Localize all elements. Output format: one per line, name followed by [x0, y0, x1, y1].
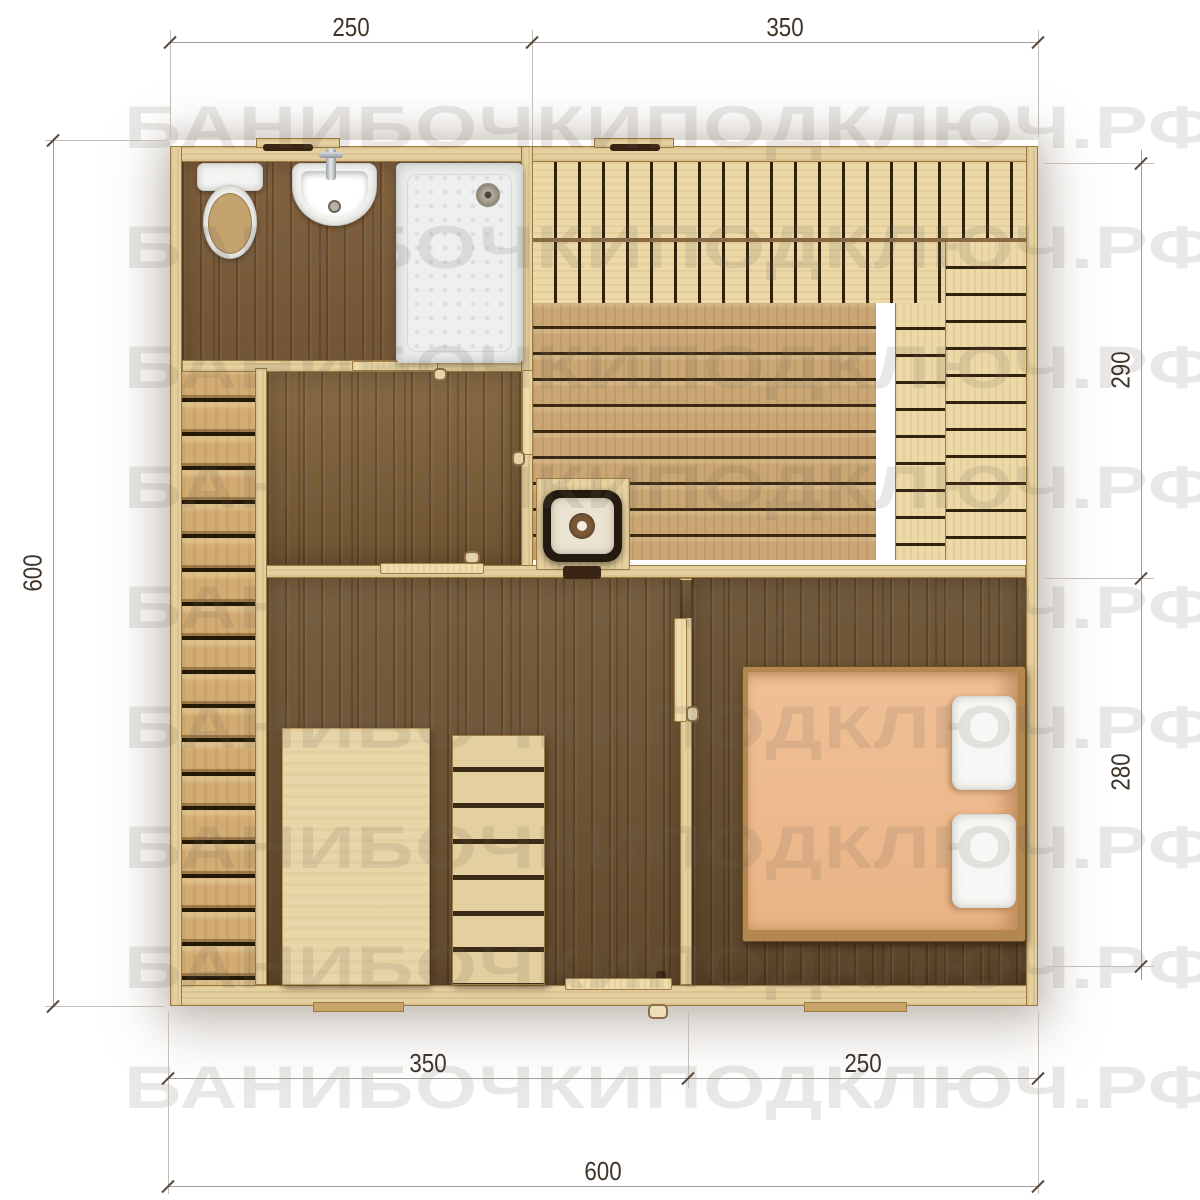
- dim-bottom-right: 250: [841, 1048, 884, 1079]
- stove-chimney: [563, 566, 601, 579]
- sauna-bench-right: [945, 242, 1026, 560]
- shower-drain: [476, 183, 500, 207]
- entrance-door-handle: [648, 1004, 668, 1019]
- dim-top-left: 250: [329, 12, 372, 43]
- dim-left-total: 600: [18, 551, 49, 594]
- bedroom-door-leaf: [674, 618, 687, 722]
- sauna-door-leaf: [522, 370, 533, 455]
- extension-line: [1038, 1012, 1039, 1194]
- table: [282, 728, 430, 985]
- bed-pillow-top: [952, 696, 1016, 790]
- entrance-door-leaf: [565, 978, 672, 990]
- entrance-threshold-left: [313, 1002, 404, 1012]
- wall-middle-horizontal: [255, 565, 1026, 578]
- extension-line: [170, 30, 171, 138]
- extension-line: [168, 1012, 169, 1194]
- extension-line: [1038, 30, 1039, 138]
- bed-pillow-bottom: [952, 814, 1016, 908]
- top-wall-vent-right: [610, 144, 660, 151]
- extension-line: [45, 140, 165, 141]
- top-wall-vent-left: [263, 144, 313, 151]
- bedroom-doorway-opening: [680, 580, 692, 618]
- bedroom-door-handle: [686, 706, 699, 722]
- dim-bottom-total: 600: [581, 1156, 624, 1187]
- floor-plan: [170, 140, 1038, 1006]
- sink-faucet-handle: [319, 152, 343, 158]
- sink-drain: [328, 200, 341, 213]
- sauna-bench-lower-tier: [533, 242, 945, 303]
- dimension-line-top: [170, 42, 1038, 43]
- bench: [452, 735, 545, 985]
- washroom-door-handle: [464, 551, 480, 564]
- dim-right-lower: 280: [1106, 750, 1137, 793]
- wall-outer-left: [170, 146, 182, 1006]
- extension-line: [532, 30, 533, 146]
- dimension-line-bottom-inner: [168, 1078, 1038, 1079]
- entrance-threshold-right: [804, 1002, 907, 1012]
- terrace-decking: [182, 368, 255, 985]
- sauna-bench-middle-step: [895, 303, 945, 560]
- bathroom-door-handle: [433, 368, 447, 381]
- extension-line: [45, 1006, 165, 1007]
- floor-plan-canvas: БАНИБОЧКИПОДКЛЮЧ.РФ БАНИБОЧКИПОДКЛЮЧ.РФ …: [0, 0, 1200, 1200]
- sauna-bench-upper-tier: [533, 162, 1026, 240]
- sauna-door-handle: [512, 451, 525, 466]
- toilet-seat: [208, 193, 252, 254]
- dimension-line-right: [1141, 150, 1142, 980]
- stove-ring-hole: [577, 521, 587, 531]
- washroom-door-leaf: [380, 563, 484, 574]
- dim-right-upper: 290: [1106, 348, 1137, 391]
- dim-bottom-left: 350: [406, 1048, 449, 1079]
- dim-top-right: 350: [763, 12, 806, 43]
- wall-terrace-east: [255, 368, 267, 985]
- washroom-floor: [267, 372, 521, 565]
- dimension-line-left: [53, 140, 54, 1006]
- wall-outer-right: [1026, 146, 1038, 1006]
